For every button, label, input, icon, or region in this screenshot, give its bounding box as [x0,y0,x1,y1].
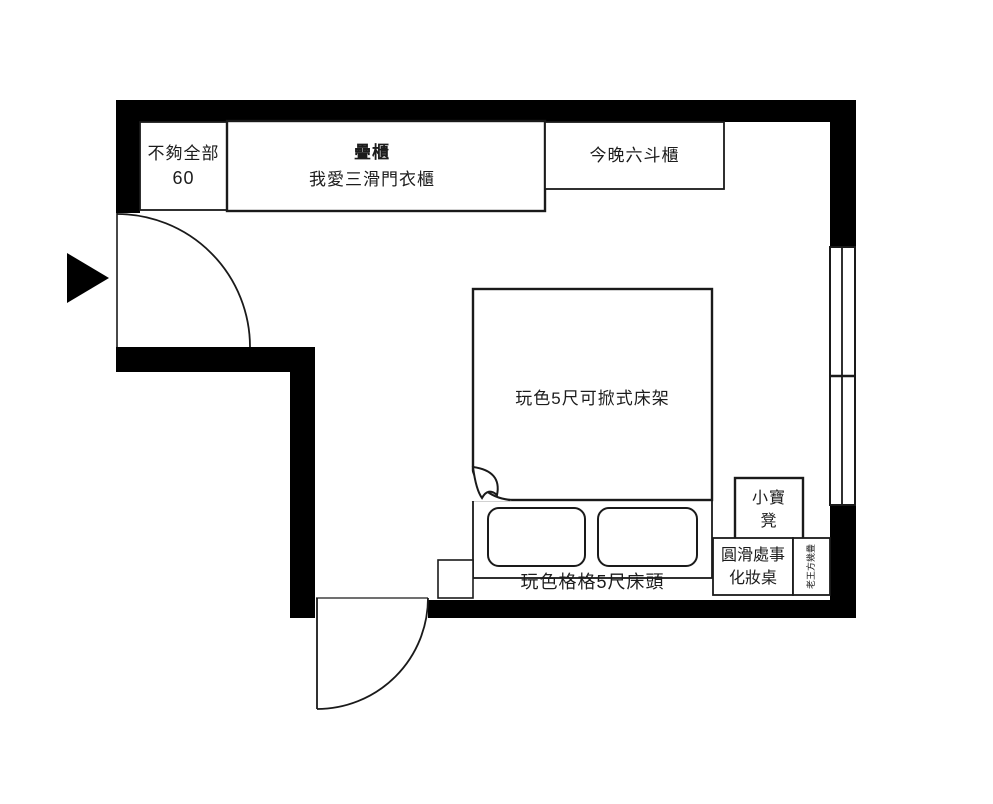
side-table-label: 老王方幾疊 [805,538,818,595]
floor-plan: 不夠全部 60 疊櫃 我愛三滑門衣櫃 今晚六斗櫃 玩色5尺可掀式床架 玩色格格5… [0,0,993,804]
bed-label-text: 玩色5尺可掀式床架 [515,387,669,411]
bed-label: 玩色5尺可掀式床架 [473,289,712,500]
wall-top [116,100,856,122]
wall-right-upper [830,100,856,247]
nightstand-box [438,560,473,598]
closet-small-label-line1: 不夠全部 [148,142,220,166]
entry-arrow-icon [67,253,109,303]
pillow-left [488,508,585,566]
wall-bottom [428,600,856,618]
stool-label-line2: 凳 [760,510,777,533]
vanity-label-line1: 圓滑處事 [721,544,785,567]
vanity-label: 圓滑處事 化妝桌 [713,538,793,595]
left-door [117,213,250,347]
stool-label-line1: 小寶 [752,487,786,510]
wall-left-upper [116,100,140,213]
closet-small-label: 不夠全部 60 [140,122,227,210]
wardrobe-label: 疊櫃 我愛三滑門衣櫃 [227,121,517,211]
bottom-door [316,598,428,709]
bottom-door-arc [317,598,428,709]
window-right [830,247,855,505]
dresser-label: 今晚六斗櫃 [545,122,724,189]
left-door-arc [117,214,250,347]
dresser-label-text: 今晚六斗櫃 [590,144,680,168]
wall-mid-horizontal [116,347,315,372]
closet-small-label-line2: 60 [172,166,194,190]
headboard-label: 玩色格格5尺床頭 [473,570,712,594]
wardrobe-label-line1: 疊櫃 [354,141,390,165]
pillow-right [598,508,697,566]
wardrobe-label-line2: 我愛三滑門衣櫃 [309,168,435,192]
wall-left-lower [290,372,315,618]
stool-label: 小寶 凳 [735,478,803,541]
vanity-label-line2: 化妝桌 [729,567,777,590]
